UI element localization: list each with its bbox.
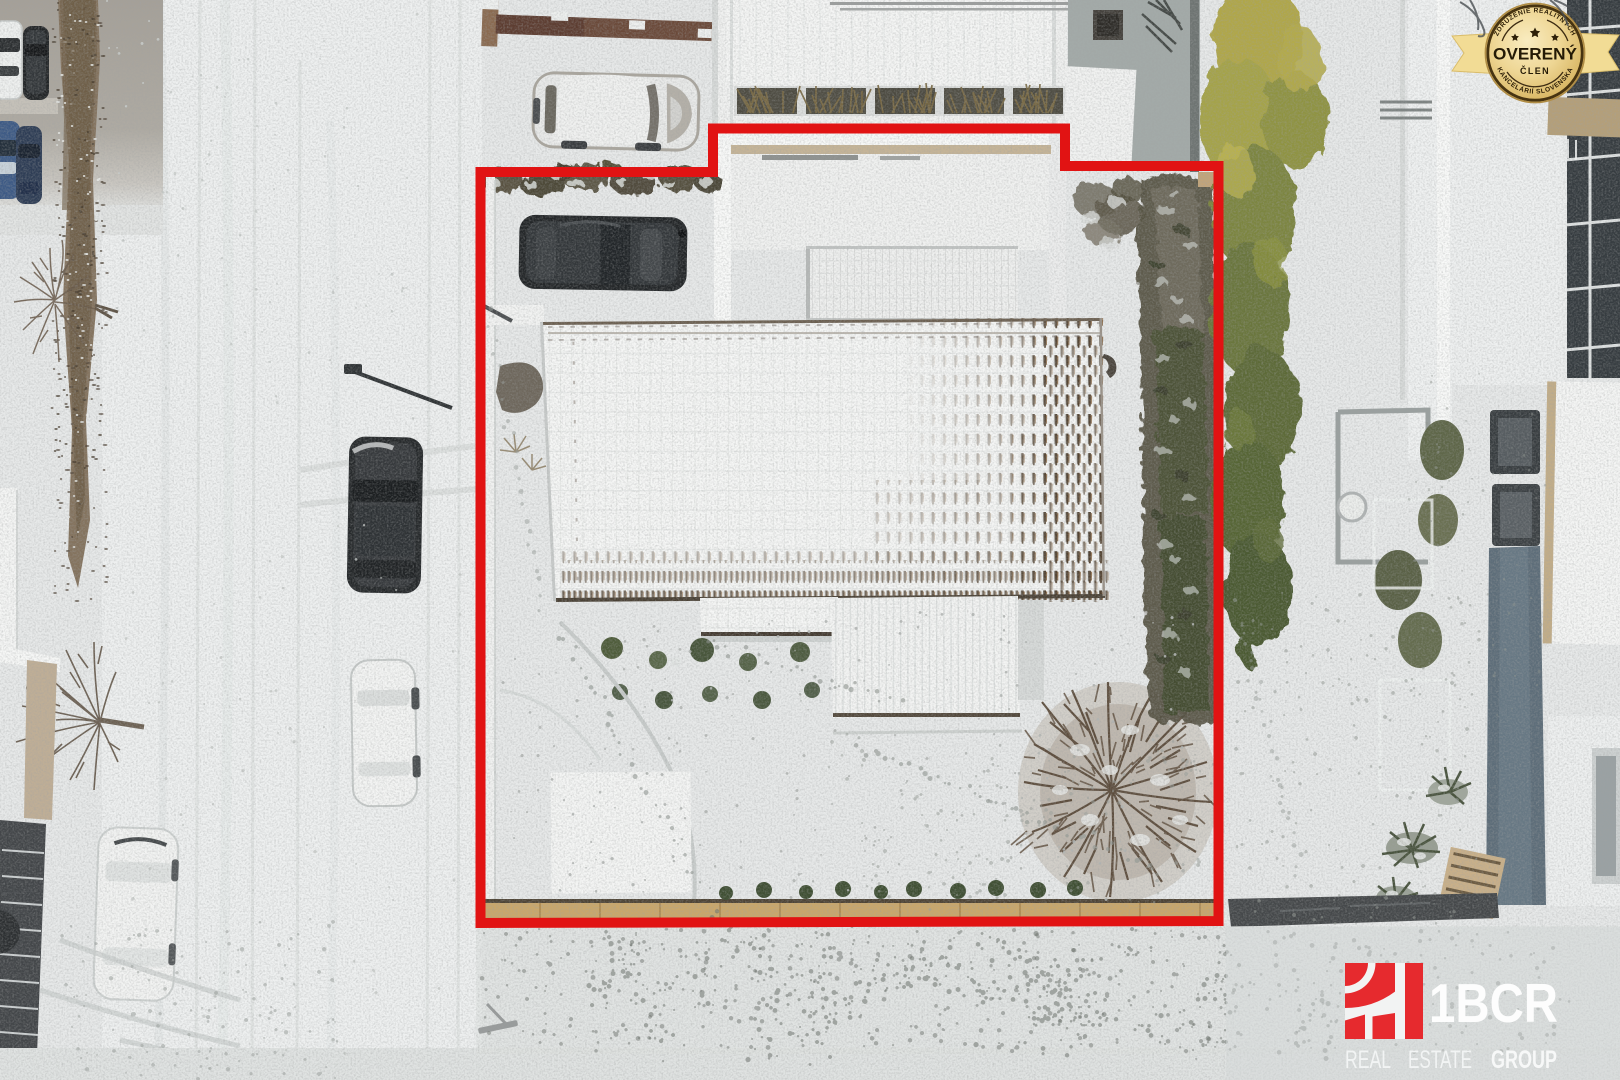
svg-text:REAL: REAL xyxy=(1345,1046,1391,1074)
svg-text:GROUP: GROUP xyxy=(1491,1046,1557,1074)
svg-text:OVERENÝ: OVERENÝ xyxy=(1493,45,1578,64)
svg-text:ESTATE: ESTATE xyxy=(1408,1046,1472,1074)
svg-text:1BCR: 1BCR xyxy=(1429,972,1558,1034)
svg-text:ČLEN: ČLEN xyxy=(1520,65,1550,76)
